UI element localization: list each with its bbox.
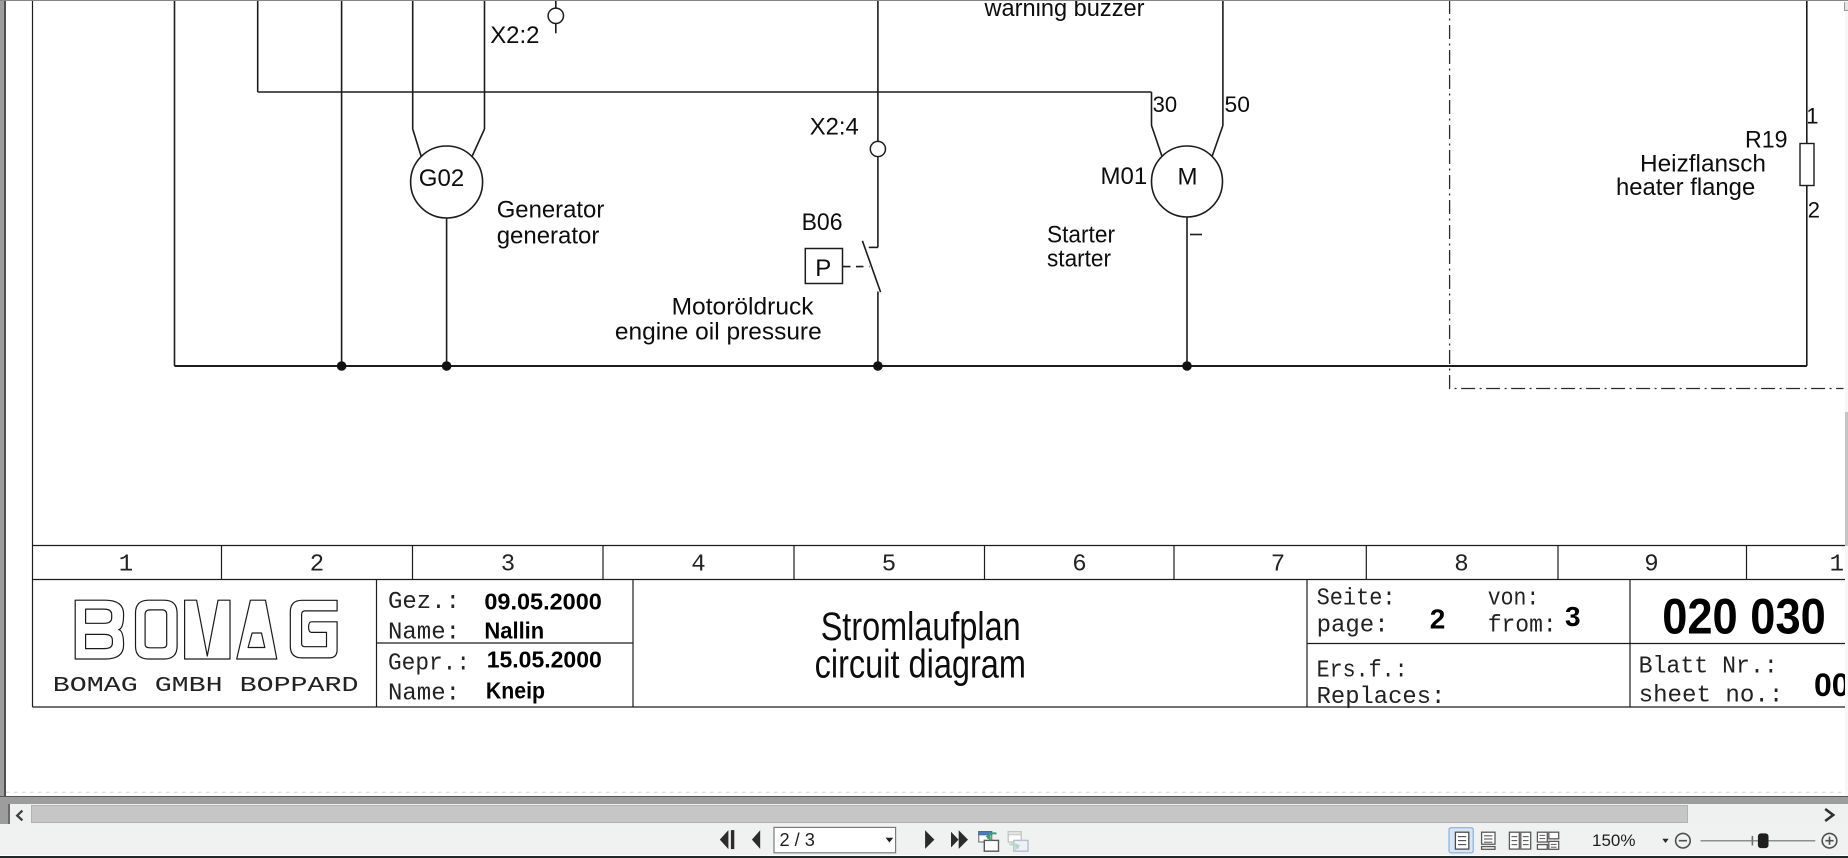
svg-text:6: 6 bbox=[1072, 552, 1086, 579]
svg-text:2: 2 bbox=[1808, 198, 1820, 223]
svg-text:starter: starter bbox=[1047, 246, 1111, 273]
svg-text:von:: von: bbox=[1488, 586, 1540, 613]
svg-text:15.05.2000: 15.05.2000 bbox=[487, 647, 602, 673]
svg-text:warning buzzer: warning buzzer bbox=[984, 0, 1145, 22]
svg-text:2 / 3: 2 / 3 bbox=[780, 830, 815, 850]
svg-text:Name:: Name: bbox=[388, 619, 460, 646]
svg-text:Name:: Name: bbox=[388, 681, 460, 708]
svg-text:001: 001 bbox=[1814, 667, 1848, 703]
svg-text:5: 5 bbox=[882, 552, 896, 579]
svg-text:4: 4 bbox=[691, 552, 705, 579]
svg-text:Replaces:: Replaces: bbox=[1317, 684, 1446, 711]
svg-text:50: 50 bbox=[1225, 92, 1250, 117]
svg-text:Seite:: Seite: bbox=[1317, 585, 1396, 612]
svg-text:sheet no.:: sheet no.: bbox=[1639, 683, 1784, 710]
svg-text:circuit diagram: circuit diagram bbox=[815, 642, 1026, 686]
svg-text:8: 8 bbox=[1454, 552, 1468, 579]
svg-text:Blatt Nr.:: Blatt Nr.: bbox=[1639, 654, 1778, 681]
svg-text:30: 30 bbox=[1153, 92, 1178, 117]
svg-text:020 030: 020 030 bbox=[1662, 589, 1826, 645]
svg-text:engine oil pressure: engine oil pressure bbox=[615, 318, 822, 345]
svg-text:Kneip: Kneip bbox=[486, 678, 545, 704]
svg-text:M01: M01 bbox=[1101, 163, 1148, 190]
svg-text:3: 3 bbox=[501, 552, 515, 579]
svg-text:Ers.f.:: Ers.f.: bbox=[1317, 657, 1408, 684]
svg-text:page:: page: bbox=[1317, 612, 1389, 639]
svg-text:from:: from: bbox=[1488, 612, 1557, 639]
svg-text:X2:2: X2:2 bbox=[490, 22, 539, 49]
svg-text:P: P bbox=[815, 255, 831, 282]
svg-text:Gepr.:: Gepr.: bbox=[388, 651, 470, 678]
svg-text:3: 3 bbox=[1565, 601, 1581, 632]
svg-text:Nallin: Nallin bbox=[484, 617, 544, 643]
svg-text:1: 1 bbox=[119, 552, 133, 579]
svg-text:9: 9 bbox=[1644, 552, 1658, 579]
svg-text:B06: B06 bbox=[802, 209, 843, 236]
svg-text:M: M bbox=[1178, 163, 1198, 190]
svg-text:09.05.2000: 09.05.2000 bbox=[484, 588, 601, 614]
svg-text:heater flange: heater flange bbox=[1616, 174, 1755, 201]
svg-text:1: 1 bbox=[1806, 103, 1818, 128]
svg-text:7: 7 bbox=[1271, 552, 1285, 579]
svg-text:Motoröldruck: Motoröldruck bbox=[672, 293, 815, 320]
svg-text:Generator: Generator bbox=[497, 196, 605, 223]
svg-text:generator: generator bbox=[497, 222, 600, 249]
svg-text:Gez.:: Gez.: bbox=[388, 589, 460, 616]
svg-text:G02: G02 bbox=[419, 165, 464, 192]
svg-text:2: 2 bbox=[1430, 604, 1446, 635]
svg-text:X2:4: X2:4 bbox=[810, 114, 859, 141]
svg-text:2: 2 bbox=[310, 552, 324, 579]
svg-text:BOMAG GMBH BOPPARD: BOMAG GMBH BOPPARD bbox=[53, 674, 359, 698]
svg-text:150%: 150% bbox=[1592, 831, 1635, 850]
